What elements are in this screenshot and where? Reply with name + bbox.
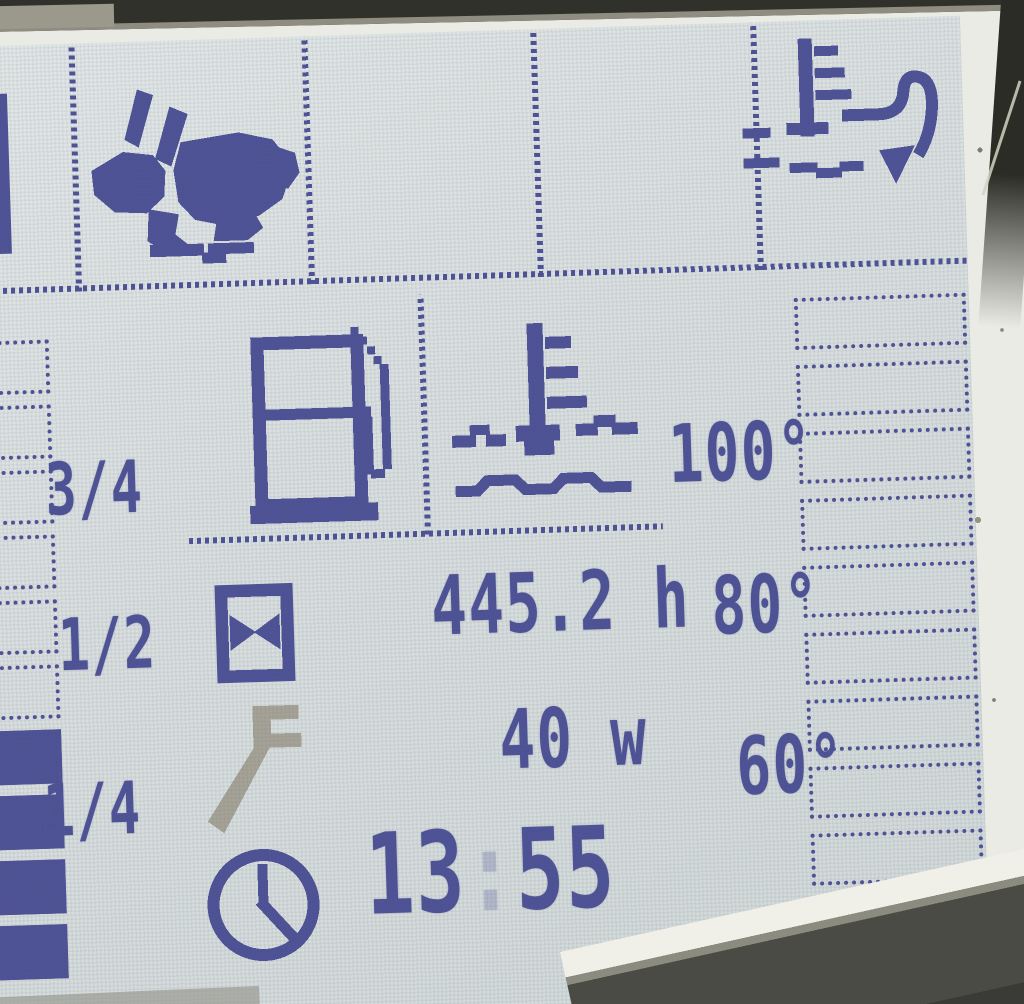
top-row-divider [68, 44, 82, 292]
coolant-thermometer-icon [448, 318, 646, 506]
partial-bar-icon [0, 94, 12, 255]
operating-hours-value: 445.2 h [430, 560, 691, 646]
fuel-tick-label: 1/2 [57, 608, 157, 679]
temp-tick-label: 100° [667, 413, 814, 494]
wrench-icon [194, 700, 318, 836]
fuel-tick-label: 3/4 [44, 453, 144, 524]
gauge-segment-empty [796, 360, 970, 417]
temp-tick-label: 60° [735, 726, 846, 805]
gauge-segment-empty [804, 627, 978, 684]
gauge-segment-empty [800, 494, 974, 551]
rabbit-icon [86, 47, 303, 268]
gauge-segment-empty [794, 293, 968, 350]
top-row-divider [530, 29, 544, 277]
time-hours: 13 [364, 808, 468, 941]
gauge-segment-empty [0, 599, 59, 657]
lcd-panel: 3/4 1/2 1/4 [0, 16, 991, 1004]
service-value: 40 w [498, 698, 648, 780]
dashboard-photo: 3/4 1/2 1/4 [0, 0, 1024, 1004]
hourglass-icon [214, 583, 295, 683]
coolant-temperature-gauge [794, 293, 986, 953]
fuel-pump-icon [242, 324, 398, 529]
time-minutes: 55 [514, 803, 618, 936]
thermometer-circulation-icon [740, 32, 945, 208]
clock-icon [203, 840, 325, 970]
gauge-segment-empty [802, 561, 976, 618]
gauge-segment-empty [0, 664, 61, 722]
gauge-segment-filled [0, 924, 69, 982]
gauge-segment-empty [798, 427, 972, 484]
time-readout: 13:55 [364, 815, 617, 929]
time-separator: : [464, 806, 518, 938]
fuel-tick-label: 1/4 [42, 774, 142, 845]
top-row-divider [301, 36, 315, 284]
gauge-segment-empty [0, 339, 50, 397]
section-divider [417, 295, 431, 535]
gauge-segment-empty [0, 534, 56, 592]
temp-tick-label: 80° [710, 565, 821, 644]
bezel-top-highlight [0, 4, 114, 29]
gauge-segment-filled [0, 859, 67, 917]
